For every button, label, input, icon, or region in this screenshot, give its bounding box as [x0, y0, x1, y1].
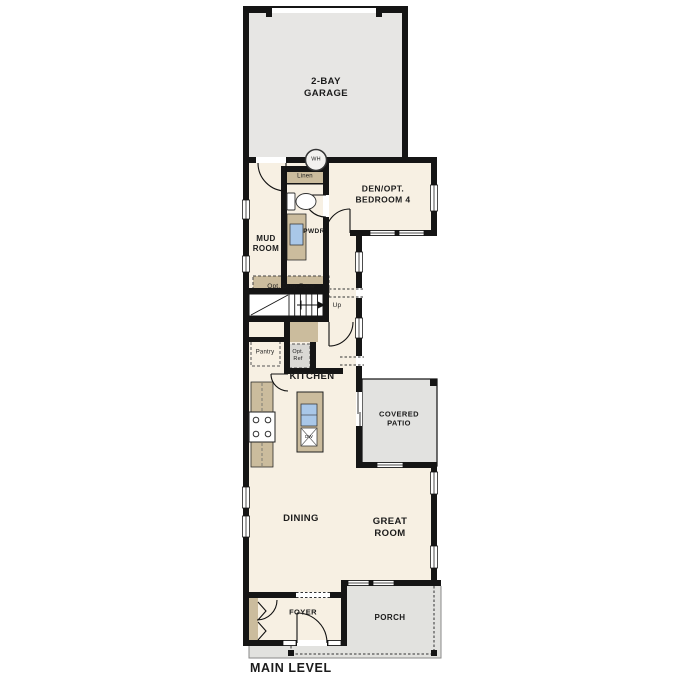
floor-plan: 2-BAY GARAGE DEN/OPT. BEDROOM 4 MUD ROOM…	[0, 0, 687, 687]
floor-fills	[249, 11, 441, 658]
patio-post	[430, 379, 437, 386]
mud-room-label: MUD ROOM	[253, 234, 280, 254]
dishwasher-label: DW	[305, 434, 313, 440]
opt-ref-label: Opt. Ref	[292, 349, 303, 363]
pantry-label: Pantry	[256, 349, 275, 357]
stairs-up-label: Up	[333, 302, 342, 310]
porch-slab-left	[249, 646, 347, 658]
covered-patio-label: COVERED PATIO	[379, 410, 419, 429]
water-heater-label: WH	[311, 157, 321, 164]
toilet-tank	[287, 193, 295, 210]
foyer-closet	[249, 598, 258, 640]
vanity-sink	[290, 224, 303, 245]
dining-label: DINING	[283, 513, 319, 525]
range	[249, 412, 275, 442]
porch-label: PORCH	[375, 613, 406, 623]
stair-landing	[290, 322, 318, 342]
den-label: DEN/OPT. BEDROOM 4	[355, 183, 410, 204]
powder-label: PWDR	[303, 228, 324, 236]
floor-plan-drawing	[0, 0, 687, 687]
opt-drop-zone-label: Opt. Drop Zone	[267, 283, 315, 291]
kitchen-label: KITCHEN	[289, 371, 334, 383]
stairs	[249, 294, 325, 316]
plan-title: MAIN LEVEL	[250, 661, 332, 677]
linen-label: Linen	[297, 173, 313, 181]
toilet-bowl	[296, 194, 316, 210]
great-room-label: GREAT ROOM	[373, 516, 408, 540]
garage-label: 2-BAY GARAGE	[304, 76, 348, 100]
foyer-label: FOYER	[289, 607, 317, 616]
